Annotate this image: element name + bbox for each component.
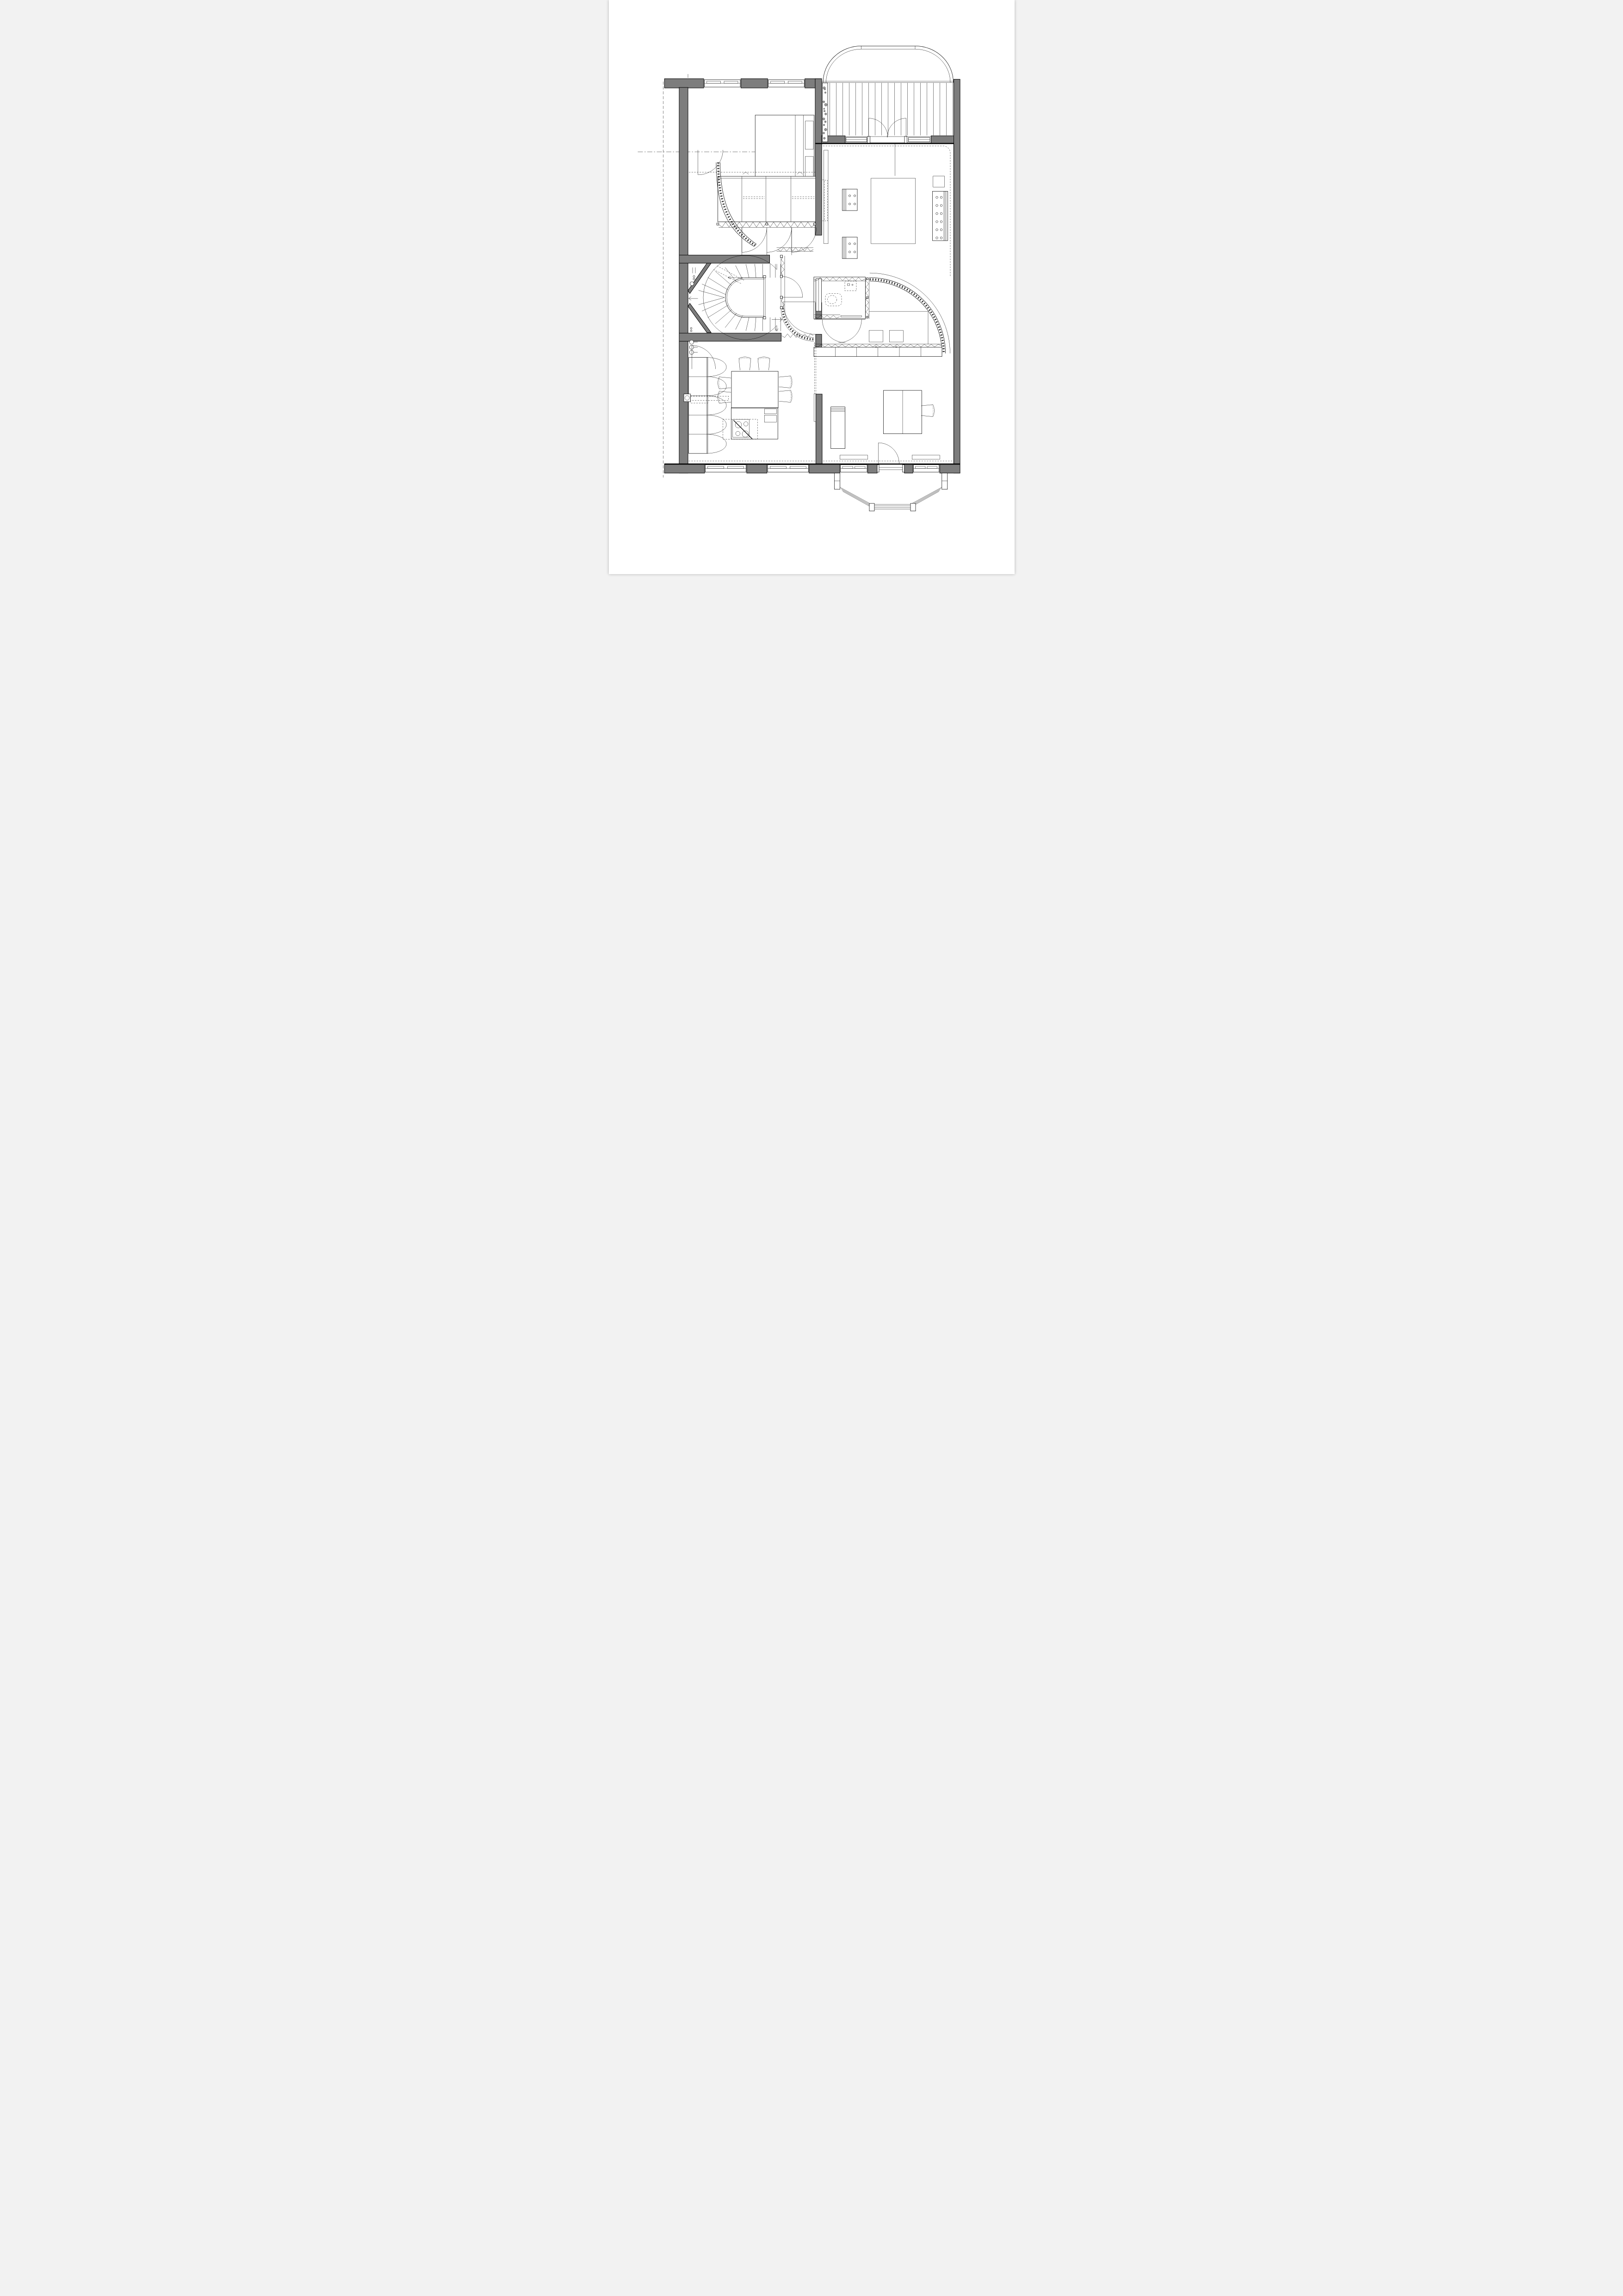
living-bench-holes xyxy=(940,237,942,239)
newel-post xyxy=(763,276,766,278)
pebble xyxy=(823,108,824,110)
post xyxy=(780,255,782,258)
ottoman-holes xyxy=(854,203,855,205)
wall-living-west xyxy=(815,143,822,235)
pebble xyxy=(824,128,827,131)
pebble xyxy=(823,118,825,120)
window-symbol xyxy=(840,465,867,472)
ottoman-holes xyxy=(854,251,855,253)
floor-plan-drawing xyxy=(609,0,1015,574)
tall-cabinets xyxy=(688,358,708,454)
bench-seat xyxy=(932,191,948,241)
living-bench-holes xyxy=(940,196,942,198)
ottoman-holes xyxy=(849,251,850,253)
wall-bottom-pier-1 xyxy=(664,464,705,473)
floor-plan-sheet xyxy=(609,0,1015,574)
living-bench-holes xyxy=(935,221,938,223)
pebble xyxy=(823,124,825,126)
ottoman-holes xyxy=(854,243,855,245)
wall-east xyxy=(954,79,960,473)
wall-top-pier-mid xyxy=(741,79,768,88)
pebble xyxy=(824,103,827,106)
ottoman-holes xyxy=(849,195,850,197)
wall-bottom-pier-4 xyxy=(867,464,877,473)
ottoman-holes xyxy=(849,203,850,205)
living-bench-holes xyxy=(935,196,938,198)
wall-top-pier-left xyxy=(664,79,704,88)
window-symbol xyxy=(768,80,804,87)
ottoman-holes xyxy=(854,195,855,197)
pebble xyxy=(824,121,826,123)
dining-table-icon xyxy=(731,371,778,408)
living-bench-holes xyxy=(940,221,942,223)
bay-post xyxy=(942,473,947,489)
pebble xyxy=(824,110,825,112)
wall-bottom-pier-5 xyxy=(904,464,912,473)
pebble xyxy=(824,113,827,115)
living-bench-holes xyxy=(935,204,938,207)
bench-seat xyxy=(830,407,845,449)
pebble xyxy=(823,101,825,103)
post xyxy=(780,307,782,309)
post xyxy=(866,278,868,280)
bay-post xyxy=(911,503,916,511)
post xyxy=(813,223,816,225)
living-bench-holes xyxy=(935,212,938,215)
wall-bedroom-balcony-divider xyxy=(815,79,822,143)
wall-bottom-pier-2 xyxy=(747,464,767,473)
window-symbol xyxy=(768,465,808,472)
living-bench-holes xyxy=(935,229,938,231)
window-symbol xyxy=(913,465,939,472)
wall-west xyxy=(679,87,688,473)
wardrobe-run xyxy=(718,176,815,222)
wall-bottom-pier-6 xyxy=(940,464,960,473)
pebble xyxy=(824,89,825,90)
desk-icon xyxy=(883,390,922,434)
door-jamb xyxy=(867,136,870,143)
post xyxy=(766,223,768,225)
living-bench-holes xyxy=(940,204,942,207)
living-bench-holes xyxy=(940,229,942,231)
window-symbol xyxy=(705,465,746,472)
wall-kitchen-study xyxy=(816,394,822,464)
pebble xyxy=(823,132,824,134)
living-bench-holes xyxy=(940,212,942,215)
newel-post xyxy=(763,317,766,319)
wall-balcony-sill-right xyxy=(931,136,954,143)
living-bench-holes xyxy=(935,237,938,239)
ottoman-holes xyxy=(849,243,850,245)
post xyxy=(717,223,719,225)
pebble xyxy=(823,137,825,140)
window-symbol xyxy=(704,80,740,87)
wall-bottom-pier-3 xyxy=(809,464,840,473)
pebble xyxy=(824,92,826,93)
wall-stair-north xyxy=(679,255,770,263)
ottoman xyxy=(842,189,857,210)
door-jamb xyxy=(904,136,907,143)
ottoman xyxy=(842,237,857,259)
bay-post xyxy=(869,503,874,511)
bay-post xyxy=(834,473,840,489)
